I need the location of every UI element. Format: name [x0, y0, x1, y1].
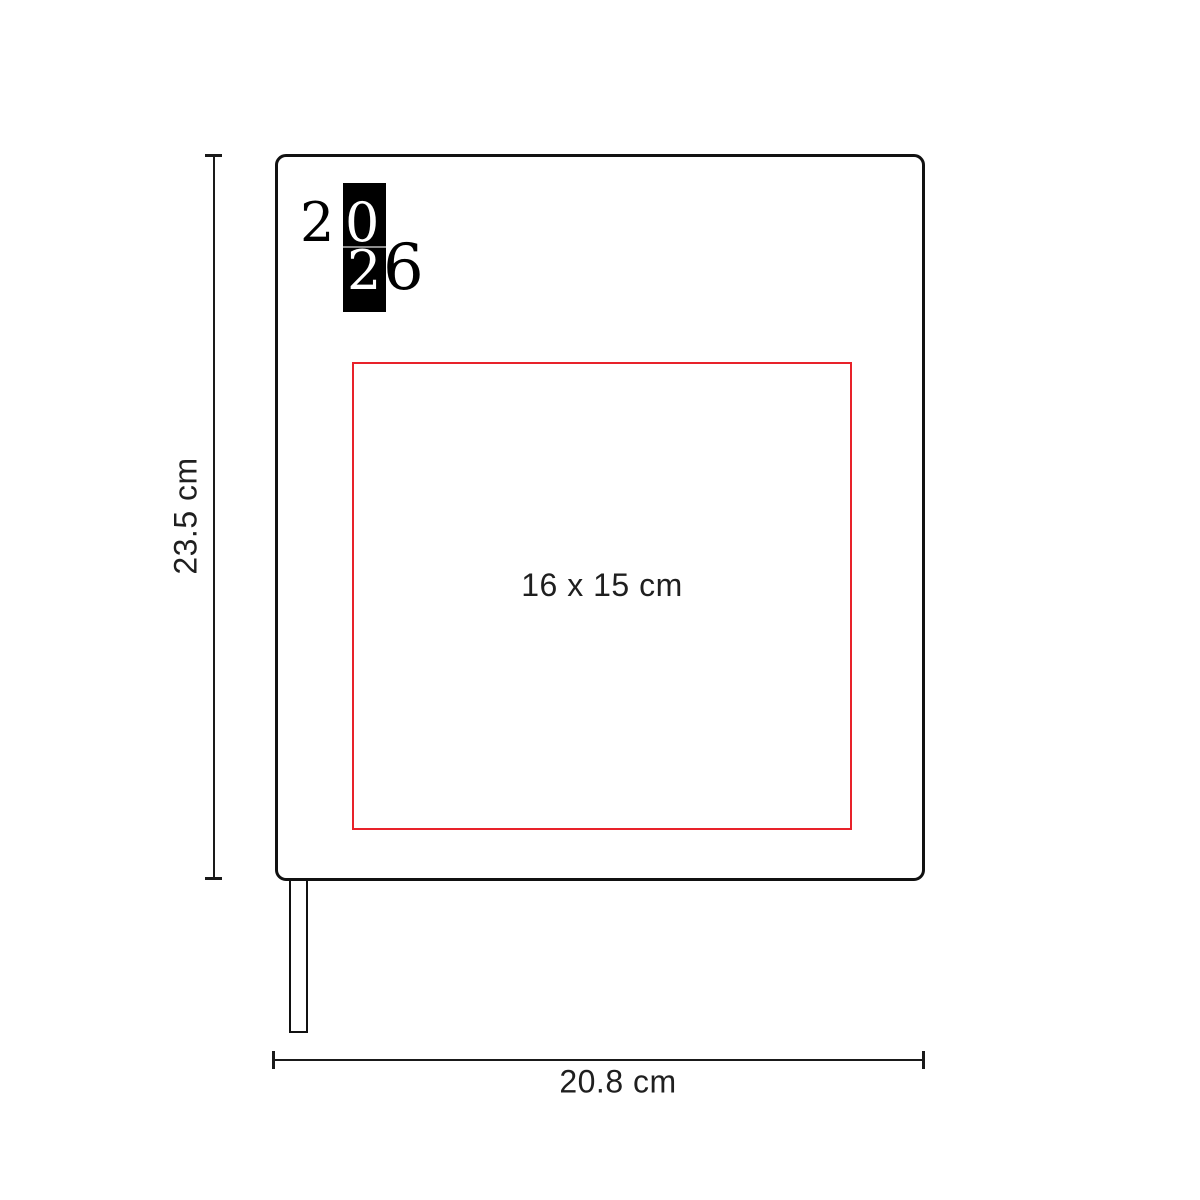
height-dimension-cap-top — [205, 154, 222, 157]
height-dimension-label: 23.5 cm — [168, 457, 205, 574]
width-dimension-cap-right — [922, 1051, 925, 1069]
height-dimension-cap-bottom — [205, 877, 222, 880]
width-dimension-line — [274, 1059, 925, 1061]
logo-digit-2: 2 — [300, 196, 334, 250]
print-area-size-label: 16 x 15 cm — [521, 567, 683, 604]
bookmark-ribbon — [289, 879, 308, 1033]
width-dimension-label: 20.8 cm — [559, 1064, 676, 1101]
width-dimension-cap-left — [272, 1051, 275, 1069]
dimension-diagram: 2 0 2 6 16 x 15 cm 23.5 cm 20.8 cm — [0, 0, 1200, 1200]
logo-digit-6: 6 — [383, 236, 424, 300]
print-area-box: 16 x 15 cm — [352, 362, 852, 830]
height-dimension-line — [213, 154, 215, 880]
logo-digit-2b: 2 — [347, 244, 381, 298]
